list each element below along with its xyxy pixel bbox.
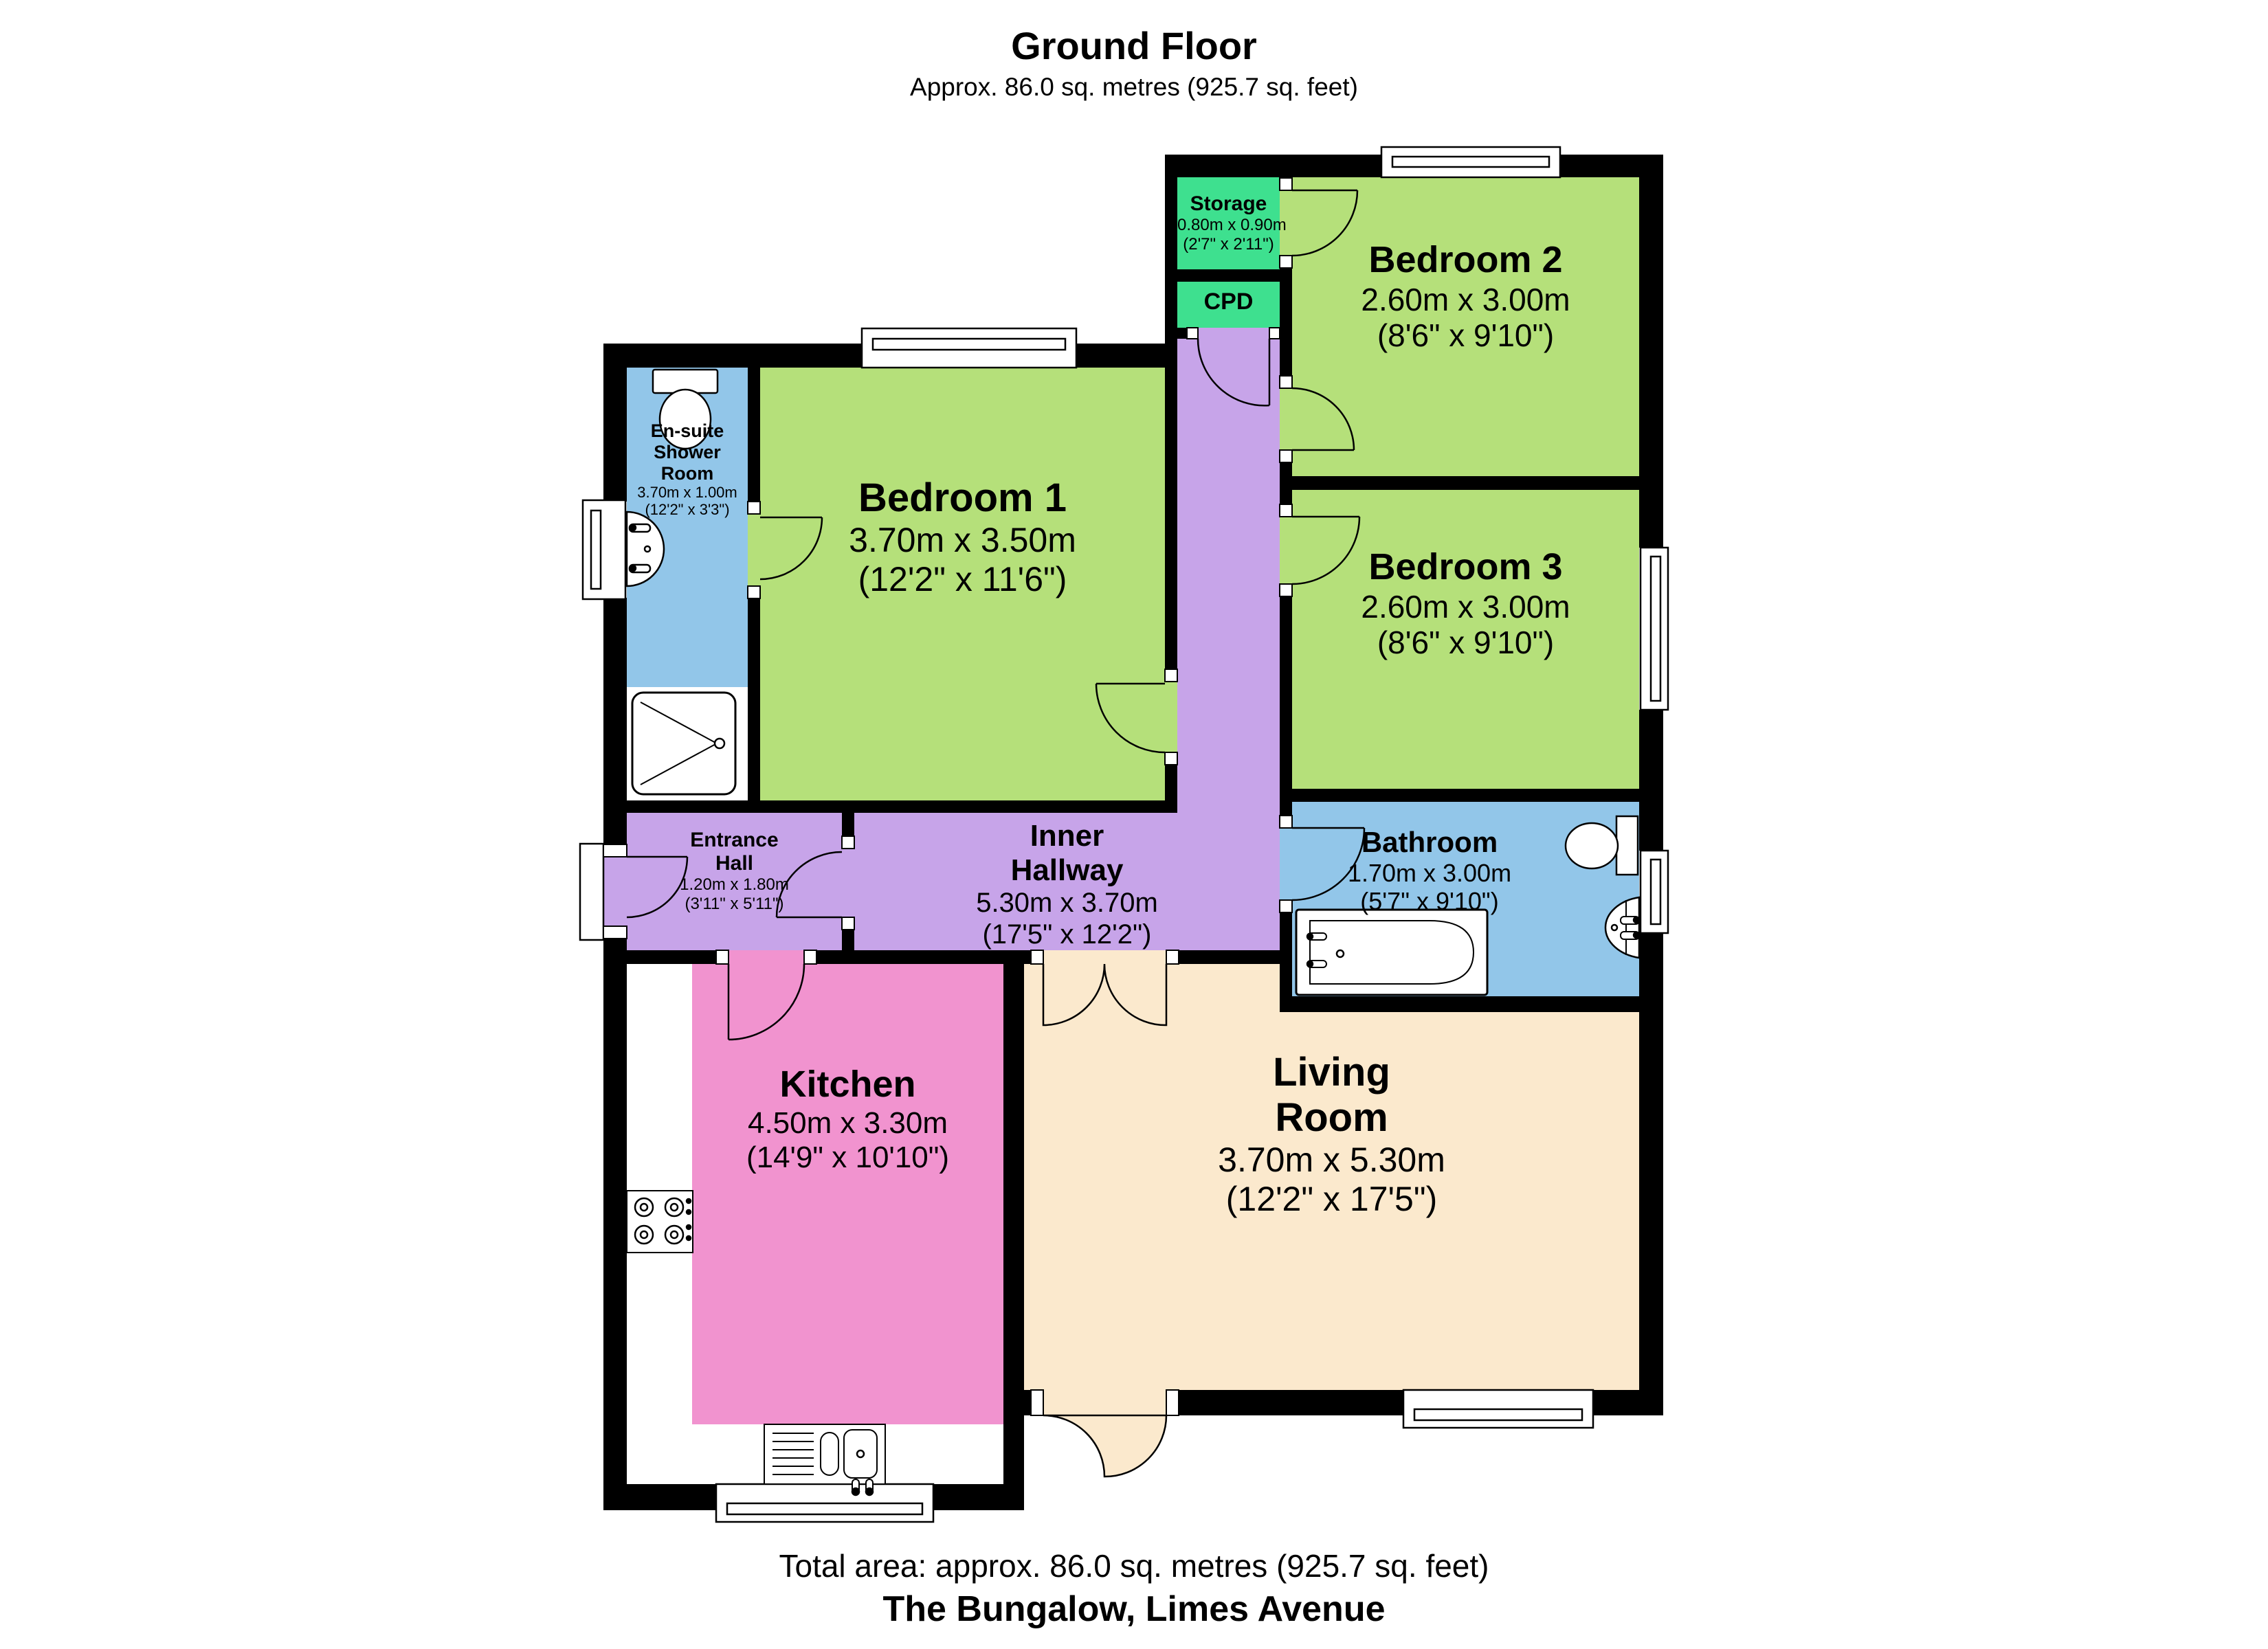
wall-segment (603, 1484, 729, 1510)
door-jamb (1269, 328, 1280, 339)
wall-segment (1639, 710, 1663, 851)
wall-segment (1177, 328, 1187, 339)
kitchen-hob (627, 1191, 693, 1253)
door-jamb (748, 586, 760, 598)
bedroom1-door-opening (1165, 682, 1177, 752)
door-jamb (603, 844, 627, 857)
door-jamb (716, 950, 729, 964)
wall-segment (1280, 462, 1292, 504)
page-subtitle: Approx. 86.0 sq. metres (925.7 sq. feet) (0, 73, 2268, 102)
door-jamb (1031, 950, 1043, 964)
bathroom-basin-drain (1612, 925, 1617, 930)
property-address: The Bungalow, Limes Avenue (0, 1589, 2268, 1630)
hallway-french-door-opening (1043, 950, 1166, 964)
door-jamb (1280, 900, 1292, 912)
door-jamb (842, 836, 854, 849)
bathroom-window-glazing (1651, 860, 1660, 924)
ensuite-window-glazing (591, 511, 601, 589)
bathroom-door-opening (1280, 828, 1292, 900)
bathroom-toilet-cistern (1616, 816, 1638, 875)
door-jamb (1280, 256, 1292, 268)
room-label-storage: Storage 0.80m x 0.90m (2'7" x 2'11") (1177, 192, 1280, 254)
shower-drain (715, 739, 724, 748)
wall-segment (1292, 789, 1639, 802)
tap-handle (630, 525, 636, 530)
wall-segment (1165, 177, 1177, 368)
tap-handle (866, 1488, 873, 1495)
hob-burner (671, 1231, 678, 1238)
ensuite-door-opening (748, 514, 760, 586)
wall-segment (1292, 476, 1639, 490)
inner-hallway-strip-floor (1177, 339, 1280, 813)
kitchen-window-glazing (727, 1503, 922, 1514)
kitchen-door-opening (729, 950, 804, 964)
door-jamb (1165, 669, 1177, 682)
page-title: Ground Floor (0, 23, 2268, 68)
tap-handle (1634, 917, 1639, 923)
total-area-text: Total area: approx. 86.0 sq. metres (925… (0, 1547, 2268, 1584)
door-jamb (1166, 950, 1179, 964)
wall-segment (804, 950, 1043, 964)
cpd-door-opening (1187, 328, 1269, 339)
wall-segment (1639, 933, 1663, 1415)
wall-segment (1280, 996, 1639, 1012)
wall-segment (921, 1484, 1024, 1510)
room-label-entrance-hall: Entrance Hall 1.20m x 1.80m (3'11" x 5'1… (627, 829, 842, 913)
wall-segment (603, 368, 627, 502)
door-jamb (1280, 178, 1292, 190)
room-label-ensuite: En-suite Shower Room 3.70m x 1.00m (12'2… (627, 420, 748, 518)
door-jamb (1165, 752, 1177, 765)
tap-handle (852, 1488, 859, 1495)
hob-burner (671, 1204, 678, 1211)
ensuite-window (583, 500, 625, 599)
wall-segment (1280, 268, 1292, 376)
door-jamb (842, 917, 854, 930)
room-label-inner-hallway: Inner Hallway 5.30m x 3.70m (17'5" x 12'… (854, 819, 1280, 951)
bedroom1-window-glazing (873, 339, 1065, 350)
door-jamb (1031, 1390, 1043, 1415)
room-label-kitchen: Kitchen 4.50m x 3.30m (14'9" x 10'10") (692, 1064, 1003, 1175)
wall-segment (1065, 344, 1177, 368)
wall-segment (1165, 368, 1177, 682)
wall-segment (603, 800, 1177, 813)
wall-segment (1165, 155, 1392, 177)
entrance-hall-door-opening (842, 849, 854, 917)
hob-burner (641, 1231, 647, 1238)
room-label-bedroom2: Bedroom 2 2.60m x 3.00m (8'6" x 9'10") (1292, 239, 1639, 353)
bedroom2-door-opening (1280, 388, 1292, 450)
wall-segment (1593, 1390, 1663, 1415)
tap-handle (1634, 932, 1639, 938)
door-jamb (1187, 328, 1198, 339)
wall-segment (1166, 950, 1280, 964)
sink-drain (857, 1450, 864, 1457)
wall-segment (1177, 269, 1280, 282)
front-door-leaf (580, 844, 603, 940)
door-jamb (1280, 816, 1292, 828)
wall-segment (748, 368, 760, 514)
wall-segment (603, 926, 627, 1510)
living-room-window-glazing (1414, 1409, 1582, 1420)
hob-knob (687, 1199, 691, 1203)
wall-segment (1280, 596, 1292, 816)
patio-french-doors (1043, 1415, 1166, 1477)
wall-segment (603, 598, 627, 857)
bedroom3-window-glazing (1651, 557, 1660, 701)
wall-segment (1003, 964, 1024, 1510)
room-label-living-room: Living Room 3.70m x 5.30m (12'2" x 17'5"… (1024, 1050, 1639, 1219)
bathtub-drain (1337, 950, 1344, 957)
door-jamb (1280, 584, 1292, 596)
room-label-bathroom: Bathroom 1.70m x 3.00m (5'7" x 9'10") (1292, 826, 1567, 915)
room-label-bedroom3: Bedroom 3 2.60m x 3.00m (8'6" x 9'10") (1292, 546, 1639, 660)
wall-segment (1639, 155, 1663, 548)
front-door-opening (603, 857, 627, 926)
tap-handle (1307, 961, 1313, 967)
bathroom-toilet-bowl (1566, 823, 1618, 868)
bedroom2-window-glazing (1392, 157, 1549, 167)
door-jamb (804, 950, 816, 964)
wall-segment (1166, 1390, 1403, 1415)
hob-burner (641, 1204, 647, 1211)
door-jamb (1280, 376, 1292, 388)
hob-knob (687, 1236, 691, 1240)
tap-handle (1307, 934, 1313, 939)
wall-segment (748, 586, 760, 800)
door-jamb (1280, 504, 1292, 517)
hob-knob (687, 1225, 691, 1229)
patio-door-opening (1043, 1390, 1166, 1415)
wall-segment (603, 950, 729, 964)
door-jamb (748, 502, 760, 514)
ensuite-basin-drain (645, 546, 650, 552)
floorplan-page: Ground Floor Approx. 86.0 sq. metres (92… (0, 0, 2268, 1649)
hob-knob (687, 1210, 691, 1214)
room-label-cpd: CPD (1177, 289, 1280, 315)
sink-bowl-small (821, 1433, 838, 1475)
door-jamb (1280, 450, 1292, 462)
tap-handle (630, 565, 636, 571)
door-jamb (603, 926, 627, 939)
kitchen-floor (692, 964, 1003, 1424)
door-jamb (1166, 1390, 1179, 1415)
bathtub-inner (1310, 921, 1474, 984)
wall-segment (603, 344, 873, 368)
bedroom3-door-opening (1280, 517, 1292, 584)
room-label-bedroom1: Bedroom 1 3.70m x 3.50m (12'2" x 11'6") (760, 475, 1165, 599)
